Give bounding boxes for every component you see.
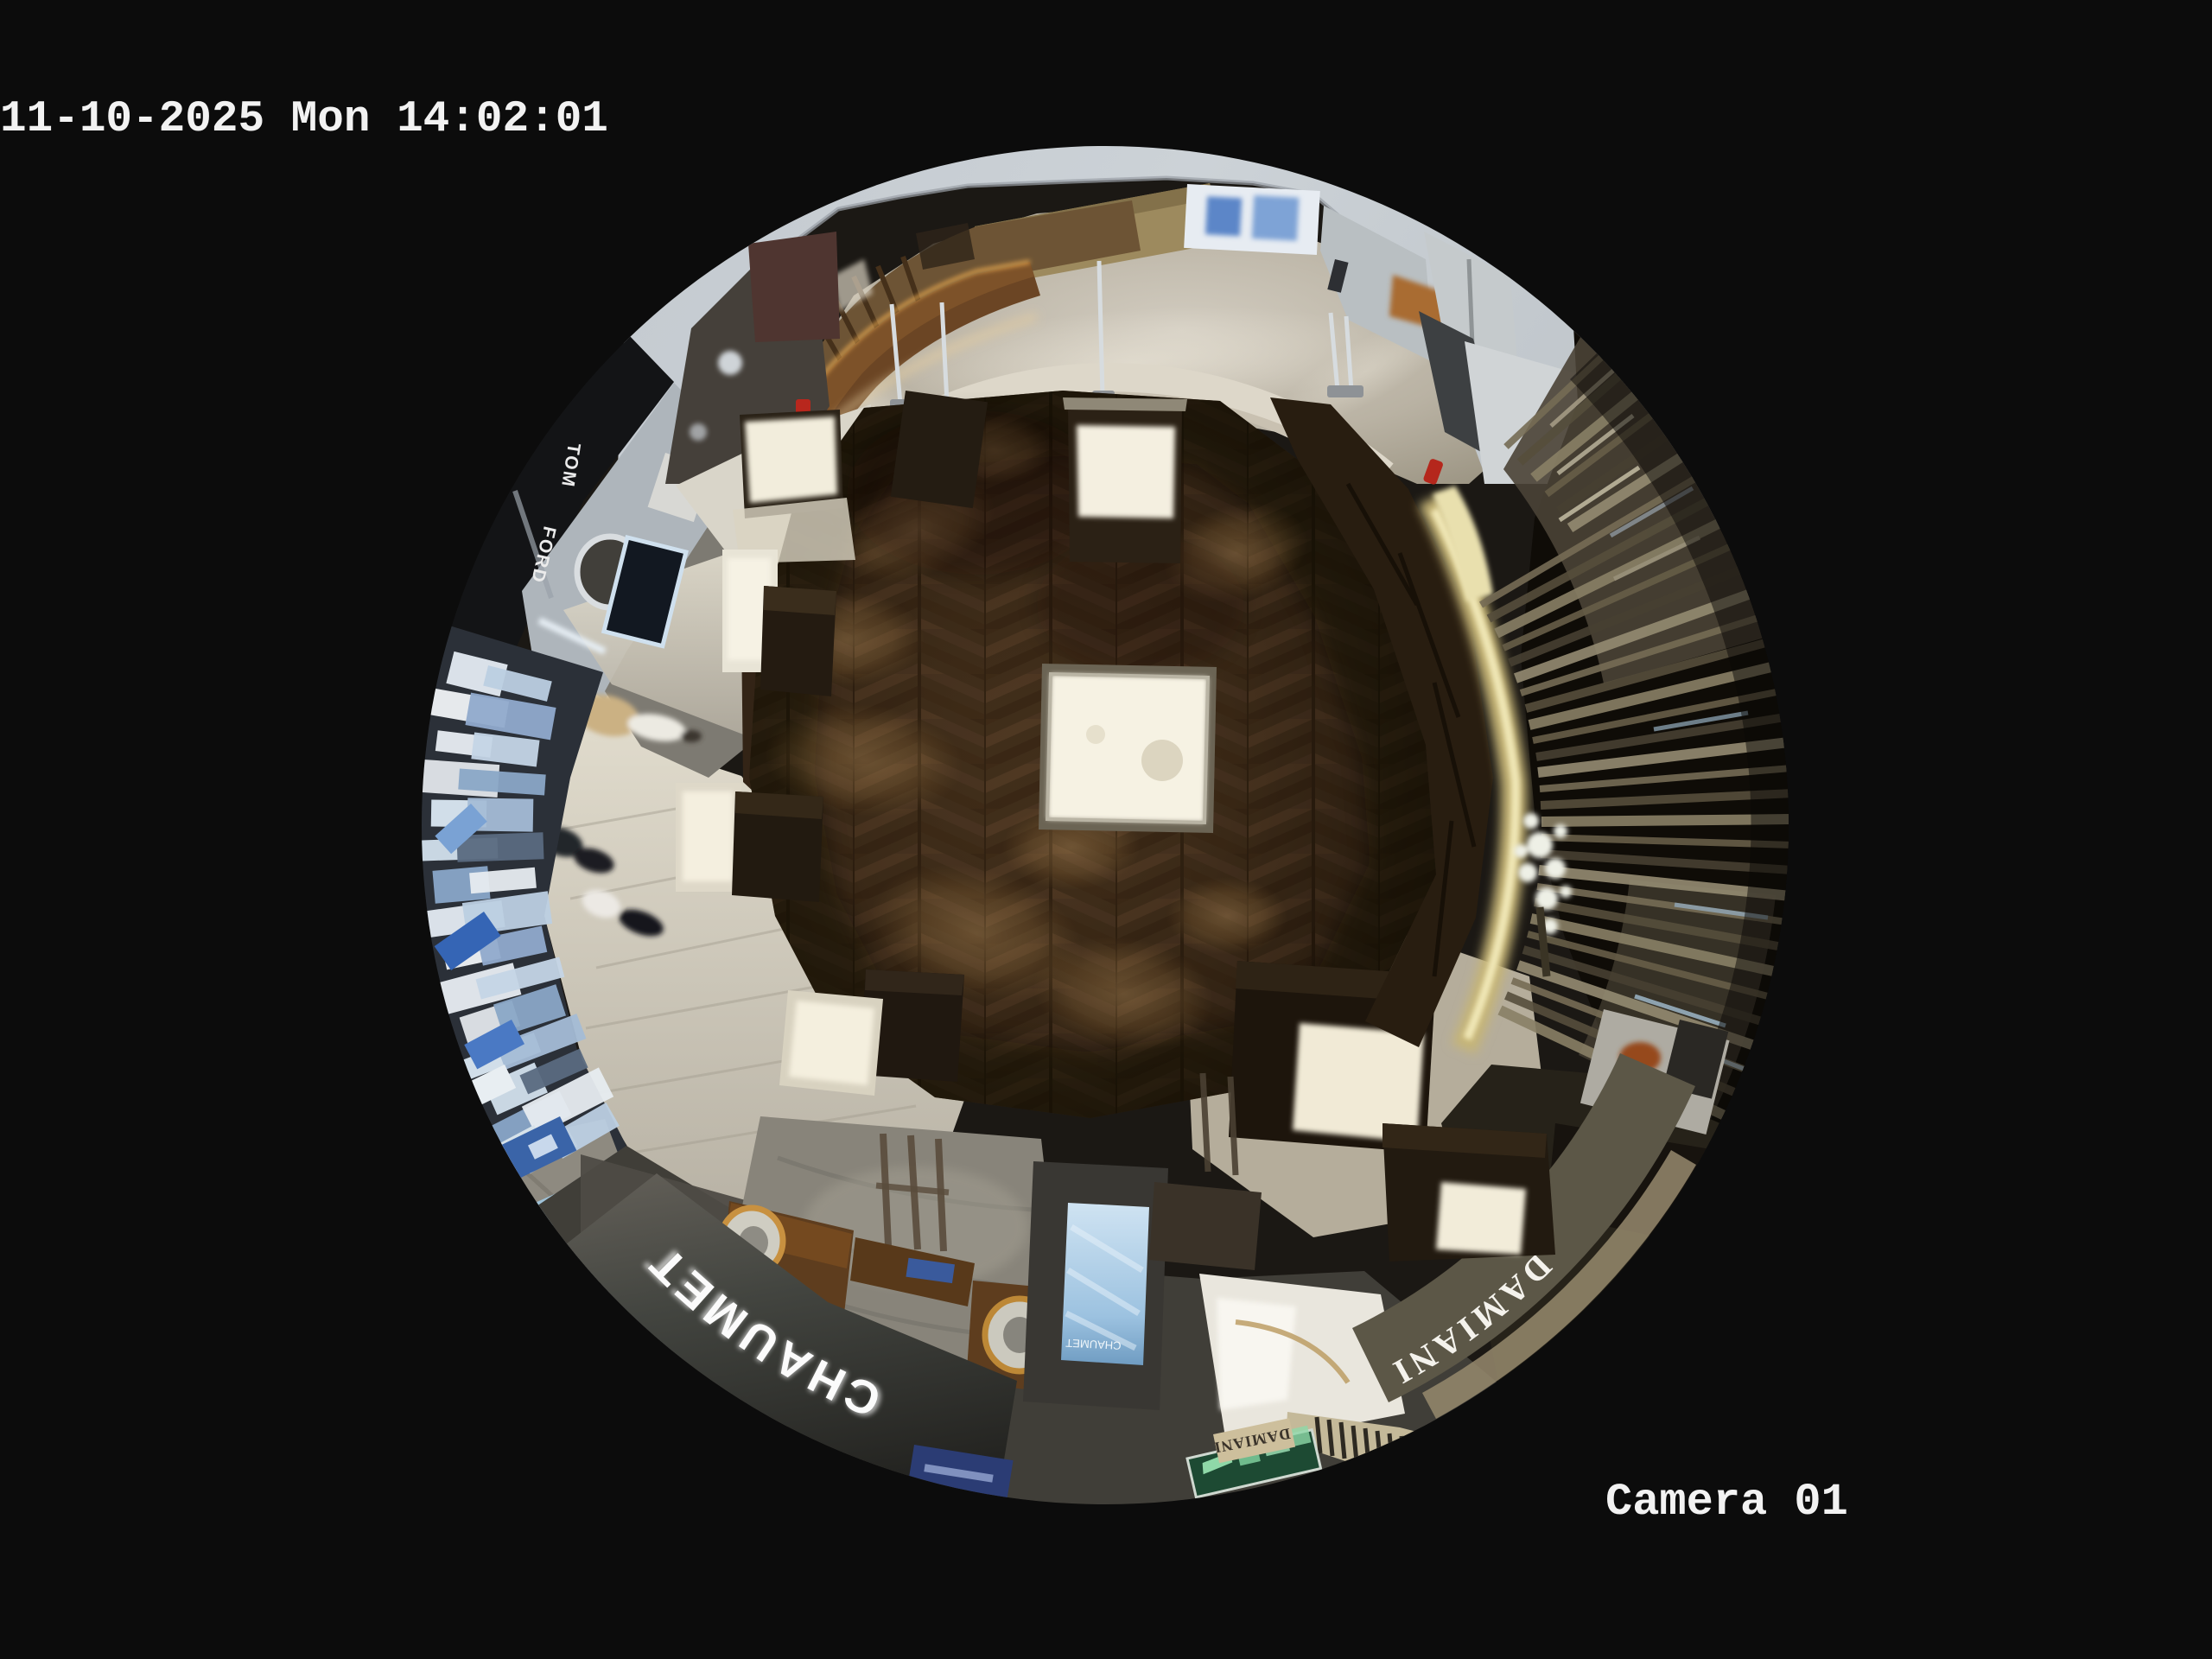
svg-text:Camera 01: Camera 01 <box>1605 1477 1848 1528</box>
svg-text:11-10-2025 Mon 14:02:01: 11-10-2025 Mon 14:02:01 <box>0 95 608 144</box>
